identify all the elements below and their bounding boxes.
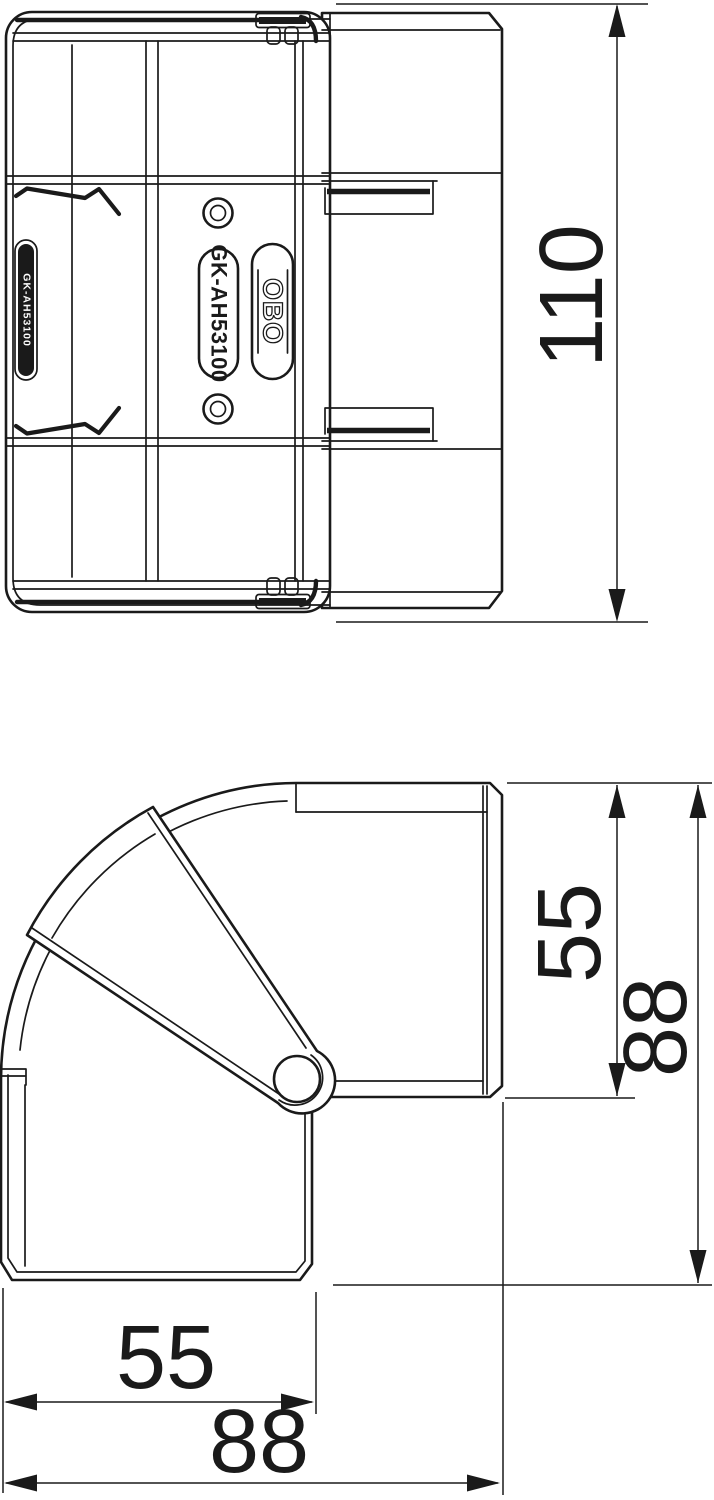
arrowhead-right xyxy=(467,1475,500,1492)
dimension-drawing: GK-AH53100 GK-AH53100 OBO 110 xyxy=(0,0,714,1500)
dimension-110-label: 110 xyxy=(522,224,622,367)
plan-view: GK-AH53100 GK-AH53100 OBO 110 xyxy=(6,4,648,622)
arrowhead-up xyxy=(609,4,626,37)
technical-drawing-page: GK-AH53100 GK-AH53100 OBO 110 xyxy=(0,0,714,1500)
dimension-88h-label: 88 xyxy=(209,1392,309,1492)
trunking-body-section xyxy=(322,13,502,608)
side-view: 55 88 55 88 xyxy=(1,783,712,1495)
body-outline xyxy=(322,13,502,608)
arrowhead-left xyxy=(4,1394,37,1411)
dimension-55h-label: 55 xyxy=(116,1308,216,1408)
side-marking-text: GK-AH53100 xyxy=(21,273,33,347)
dimension-55v-label: 55 xyxy=(520,883,620,983)
latch-fill xyxy=(259,17,306,24)
arrowhead-up xyxy=(690,785,707,818)
dimension-88v-label: 88 xyxy=(606,977,706,1077)
brand-logo-text: OBO xyxy=(258,278,289,345)
arrowhead-left xyxy=(4,1475,37,1492)
arrowhead-down xyxy=(609,589,626,622)
model-label-text: GK-AH53100 xyxy=(207,244,232,382)
arrowhead-down xyxy=(690,1250,707,1283)
arrowhead-up xyxy=(609,785,626,818)
